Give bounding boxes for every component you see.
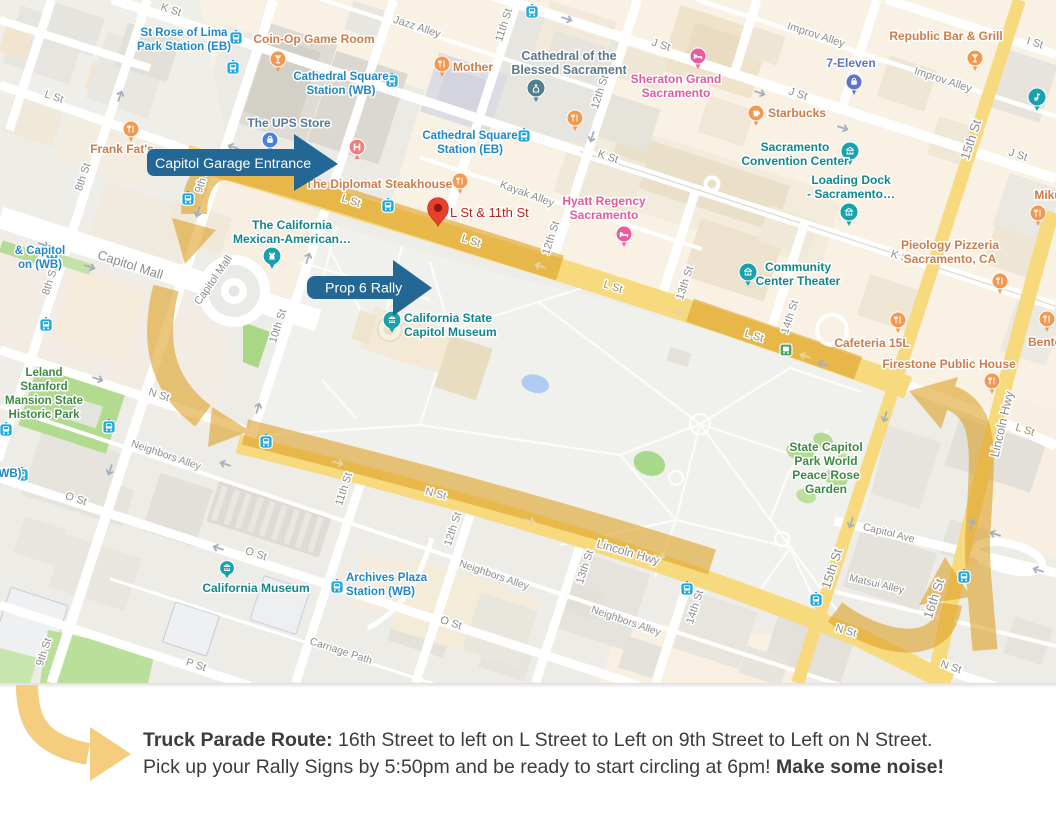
svg-text:Capitol Garage Entrance: Capitol Garage Entrance bbox=[155, 156, 311, 172]
svg-text:Capitol Museum: Capitol Museum bbox=[404, 325, 497, 339]
svg-text:California Museum: California Museum bbox=[202, 581, 309, 595]
svg-text:Cathedral Square: Cathedral Square bbox=[422, 130, 517, 142]
svg-text:7-Eleven: 7-Eleven bbox=[826, 56, 875, 70]
svg-text:Sacramento, CA: Sacramento, CA bbox=[904, 252, 997, 266]
svg-text:Firestone Public House: Firestone Public House bbox=[882, 357, 1016, 371]
svg-text:St Rose of Lima: St Rose of Lima bbox=[141, 27, 229, 39]
svg-text:Pieology Pizzeria: Pieology Pizzeria bbox=[901, 238, 999, 252]
svg-text:Center Theater: Center Theater bbox=[756, 274, 841, 288]
svg-text:Cafeteria 15L: Cafeteria 15L bbox=[834, 336, 909, 350]
svg-text:Leland: Leland bbox=[25, 367, 62, 379]
svg-text:on (WB): on (WB) bbox=[18, 259, 62, 271]
svg-text:WB): WB) bbox=[0, 468, 22, 480]
svg-text:The California: The California bbox=[252, 218, 332, 232]
svg-text:Station (WB): Station (WB) bbox=[346, 586, 415, 598]
svg-text:Historic Park: Historic Park bbox=[9, 409, 81, 421]
svg-text:Mansion State: Mansion State bbox=[5, 395, 83, 407]
svg-text:Archives Plaza: Archives Plaza bbox=[346, 572, 428, 584]
svg-text:Station (EB): Station (EB) bbox=[437, 144, 503, 156]
svg-text:Park World: Park World bbox=[794, 454, 857, 468]
svg-text:Sheraton Grand: Sheraton Grand bbox=[631, 72, 722, 86]
svg-text:Bento: Bento bbox=[1028, 335, 1056, 349]
svg-text:Hyatt Regency: Hyatt Regency bbox=[562, 194, 646, 208]
svg-text:Station (WB): Station (WB) bbox=[307, 85, 376, 97]
svg-text:Mother: Mother bbox=[453, 60, 493, 74]
svg-text:Stanford: Stanford bbox=[20, 381, 67, 393]
svg-text:State Capitol: State Capitol bbox=[789, 440, 862, 454]
svg-text:Coin-Op Game Room: Coin-Op Game Room bbox=[253, 32, 374, 46]
svg-text:Mexican-American…: Mexican-American… bbox=[233, 232, 351, 246]
svg-text:Garden: Garden bbox=[805, 482, 847, 496]
svg-text:Miku: Miku bbox=[1034, 188, 1056, 202]
svg-text:Peace Rose: Peace Rose bbox=[792, 468, 860, 482]
svg-text:Community: Community bbox=[765, 260, 831, 274]
svg-text:Sacramento: Sacramento bbox=[761, 140, 830, 154]
svg-text:Park Station (EB): Park Station (EB) bbox=[137, 41, 231, 53]
svg-text:Cathedral of the: Cathedral of the bbox=[521, 49, 616, 63]
svg-text:Blessed Sacrament: Blessed Sacrament bbox=[511, 63, 627, 77]
svg-text:Loading Dock: Loading Dock bbox=[811, 173, 891, 187]
svg-text:& Capitol: & Capitol bbox=[15, 245, 65, 257]
svg-text:Sacramento: Sacramento bbox=[642, 86, 711, 100]
svg-text:California State: California State bbox=[404, 311, 492, 325]
svg-text:- Sacramento…: - Sacramento… bbox=[807, 187, 895, 201]
svg-text:Prop 6 Rally: Prop 6 Rally bbox=[325, 281, 403, 297]
svg-text:The Diplomat Steakhouse: The Diplomat Steakhouse bbox=[306, 177, 453, 191]
svg-text:Cathedral Square: Cathedral Square bbox=[293, 71, 388, 83]
svg-text:The UPS Store: The UPS Store bbox=[247, 116, 331, 130]
svg-text:Republic Bar & Grill: Republic Bar & Grill bbox=[889, 29, 1002, 43]
svg-text:Frank Fat's: Frank Fat's bbox=[90, 142, 154, 156]
svg-text:L St & 11th St: L St & 11th St bbox=[450, 205, 529, 220]
svg-text:Starbucks: Starbucks bbox=[768, 106, 826, 120]
svg-text:Sacramento: Sacramento bbox=[570, 208, 639, 222]
svg-text:Convention Center: Convention Center bbox=[741, 154, 849, 168]
